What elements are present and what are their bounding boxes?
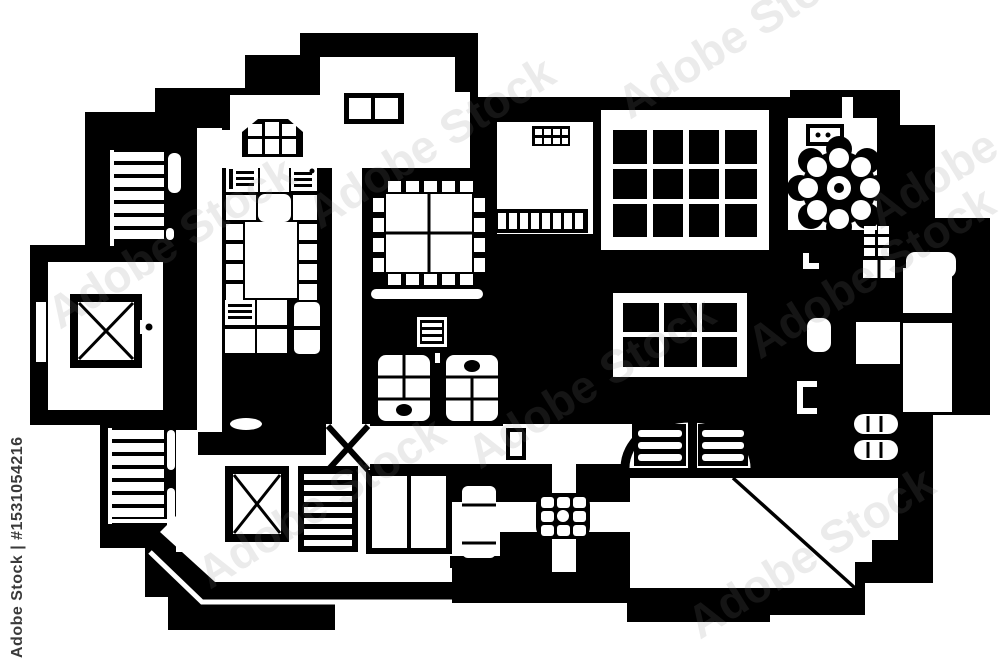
wall-window-slot bbox=[36, 302, 46, 362]
sun-table-icon bbox=[536, 493, 590, 539]
watermark-id-text: Adobe Stock | #1531054216 bbox=[9, 436, 26, 658]
door-jamb bbox=[167, 488, 175, 530]
door-frame-icon bbox=[797, 381, 817, 414]
floor-plan-illustration: Adobe Stock Adobe Stock Adobe Stock Adob… bbox=[0, 0, 1000, 667]
arched-bed-icon bbox=[625, 418, 755, 468]
right-small-room bbox=[856, 322, 900, 364]
door-swing-icon bbox=[230, 418, 262, 430]
bench-icon bbox=[371, 289, 483, 299]
stock-image-canvas: Adobe Stock Adobe Stock Adobe Stock Adob… bbox=[0, 0, 1000, 667]
dining-table-icon bbox=[386, 194, 472, 272]
door-jamb bbox=[168, 153, 181, 193]
double-window-icon bbox=[344, 93, 404, 124]
kitchen-floor bbox=[245, 222, 297, 298]
wall-shelf-icon bbox=[532, 126, 570, 146]
radiator-icon bbox=[854, 440, 898, 460]
radiator-icon bbox=[854, 414, 898, 434]
door-jamb bbox=[167, 430, 175, 470]
chimney-slot bbox=[842, 97, 853, 123]
roof-window-grid-icon bbox=[601, 110, 769, 250]
right-balcony-divider bbox=[903, 313, 952, 323]
right-balcony-room bbox=[903, 268, 952, 412]
left-corridor bbox=[197, 128, 222, 432]
radiator-icon bbox=[494, 209, 588, 233]
column-stub bbox=[510, 558, 526, 570]
column-stub bbox=[450, 556, 466, 568]
shelf-stack-icon bbox=[462, 486, 496, 558]
